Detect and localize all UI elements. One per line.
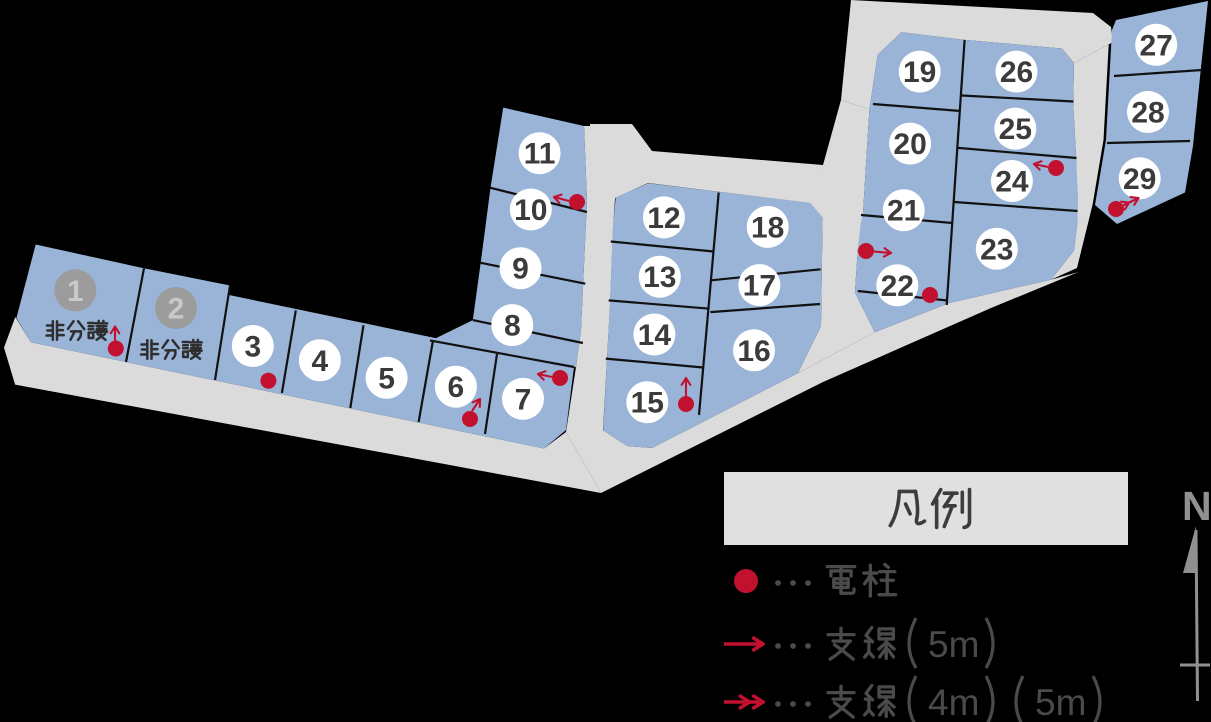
svg-text:4m: 4m xyxy=(928,682,979,722)
svg-text:28: 28 xyxy=(1131,97,1164,130)
svg-text:17: 17 xyxy=(743,270,776,303)
svg-text:11: 11 xyxy=(524,138,556,171)
svg-text:27: 27 xyxy=(1140,29,1173,62)
svg-text:6: 6 xyxy=(448,371,465,404)
svg-text:3: 3 xyxy=(244,331,261,364)
svg-text:5: 5 xyxy=(378,362,395,395)
svg-text:8: 8 xyxy=(504,310,521,343)
svg-text:9: 9 xyxy=(512,253,529,286)
svg-text:29: 29 xyxy=(1123,163,1156,196)
svg-text:1: 1 xyxy=(67,275,84,308)
svg-text:22: 22 xyxy=(881,270,914,303)
svg-text:13: 13 xyxy=(643,261,676,294)
svg-text:14: 14 xyxy=(638,319,672,352)
svg-text:25: 25 xyxy=(999,113,1032,146)
svg-text:15: 15 xyxy=(631,387,664,420)
svg-text:26: 26 xyxy=(1000,56,1033,89)
svg-text:10: 10 xyxy=(514,194,547,227)
svg-text:7: 7 xyxy=(515,383,532,416)
svg-text:21: 21 xyxy=(887,195,920,228)
svg-text:12: 12 xyxy=(647,202,680,235)
svg-text:2: 2 xyxy=(168,293,185,326)
svg-text:19: 19 xyxy=(903,56,936,89)
svg-text:24: 24 xyxy=(995,166,1029,199)
svg-text:18: 18 xyxy=(751,211,784,244)
svg-text:16: 16 xyxy=(737,335,770,368)
svg-text:5m: 5m xyxy=(1035,682,1086,722)
svg-text:4: 4 xyxy=(312,345,329,378)
svg-text:N: N xyxy=(1182,483,1211,529)
svg-text:5m: 5m xyxy=(928,624,979,665)
svg-text:23: 23 xyxy=(980,233,1013,266)
svg-text:20: 20 xyxy=(893,128,926,161)
